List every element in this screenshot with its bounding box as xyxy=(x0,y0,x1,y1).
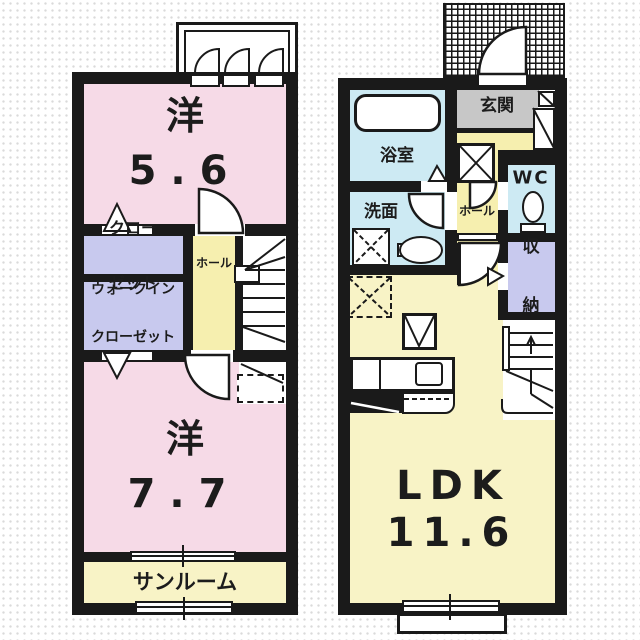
shoe-cabinet-lower xyxy=(533,108,555,150)
entrance-porch-hatch xyxy=(443,3,565,78)
room-label-bedroom1: 洋 xyxy=(166,95,204,139)
walkin-label-line2: クローゼット xyxy=(91,330,175,346)
door-opening xyxy=(445,192,457,230)
kitchen-sink xyxy=(415,362,443,386)
refrigerator-space xyxy=(347,276,392,318)
room-label-bathroom: 浴室 xyxy=(380,147,414,167)
room-label-entrance: 玄関 xyxy=(480,97,514,117)
stair-handrail-1f xyxy=(502,326,510,371)
room-label-hall-1f: ホール xyxy=(459,205,495,219)
window-sunroom-bottom xyxy=(135,601,233,614)
wall xyxy=(498,150,555,165)
floorplan-image: 洋 5.6 クロー ゼット ウォークイン クローゼット ホール 洋 7.7 サン… xyxy=(0,0,640,640)
terrace-step xyxy=(397,613,507,634)
washbasin-faucet xyxy=(397,243,405,257)
hall-2f xyxy=(193,236,235,350)
entrance-door-sill xyxy=(477,70,528,87)
window-sunroom-top xyxy=(130,551,236,562)
room-label-bedroom2: 洋 xyxy=(166,418,204,462)
window-ldk-bottom xyxy=(402,600,500,613)
door-opening xyxy=(195,224,245,236)
room-size-ldk: 11.6 xyxy=(387,510,518,556)
room-label-walkin-closet: ウォークイン クローゼット xyxy=(91,250,175,379)
storage-label-line2: 納 xyxy=(519,297,543,317)
room-label-hall-2f: ホール xyxy=(196,257,232,271)
room-label-sunroom: サンルーム xyxy=(133,570,237,594)
bathtub xyxy=(354,94,441,132)
door-opening xyxy=(498,182,508,210)
kitchen-low-wall xyxy=(350,392,402,413)
closet-label-line1: クロー xyxy=(109,219,157,237)
entrance-step-edge xyxy=(457,128,538,133)
washing-machine-pan xyxy=(352,228,390,266)
shoe-cabinet-upper xyxy=(538,91,555,107)
bay-window-sill xyxy=(222,74,250,87)
stair-overhead-dashed-box xyxy=(237,374,284,403)
door-opening xyxy=(498,263,508,290)
door-opening xyxy=(191,350,233,362)
wall xyxy=(346,265,457,275)
storage-label-line1: 収 xyxy=(519,238,543,258)
kitchen-stove xyxy=(402,313,437,350)
door-opening xyxy=(421,181,447,192)
ldk-threshold xyxy=(457,233,498,241)
hall-storage-box xyxy=(457,143,495,183)
counter-return xyxy=(402,392,455,414)
room-size-bedroom2: 7.7 xyxy=(128,471,241,517)
stairs-2f-area xyxy=(243,236,286,350)
wall xyxy=(183,236,193,350)
stair-handrail-2f xyxy=(234,265,260,283)
wall xyxy=(235,236,243,350)
bay-window-sill xyxy=(254,74,284,87)
room-label-ldk: LDK xyxy=(396,463,510,509)
bay-window-sill xyxy=(190,74,220,87)
bay-window-inner xyxy=(184,30,290,76)
walkin-label-line1: ウォークイン xyxy=(91,282,175,298)
room-label-storage: 収 納 xyxy=(519,199,543,355)
room-label-washroom: 洗面 xyxy=(364,203,398,223)
room-label-wc: WC xyxy=(512,169,549,190)
